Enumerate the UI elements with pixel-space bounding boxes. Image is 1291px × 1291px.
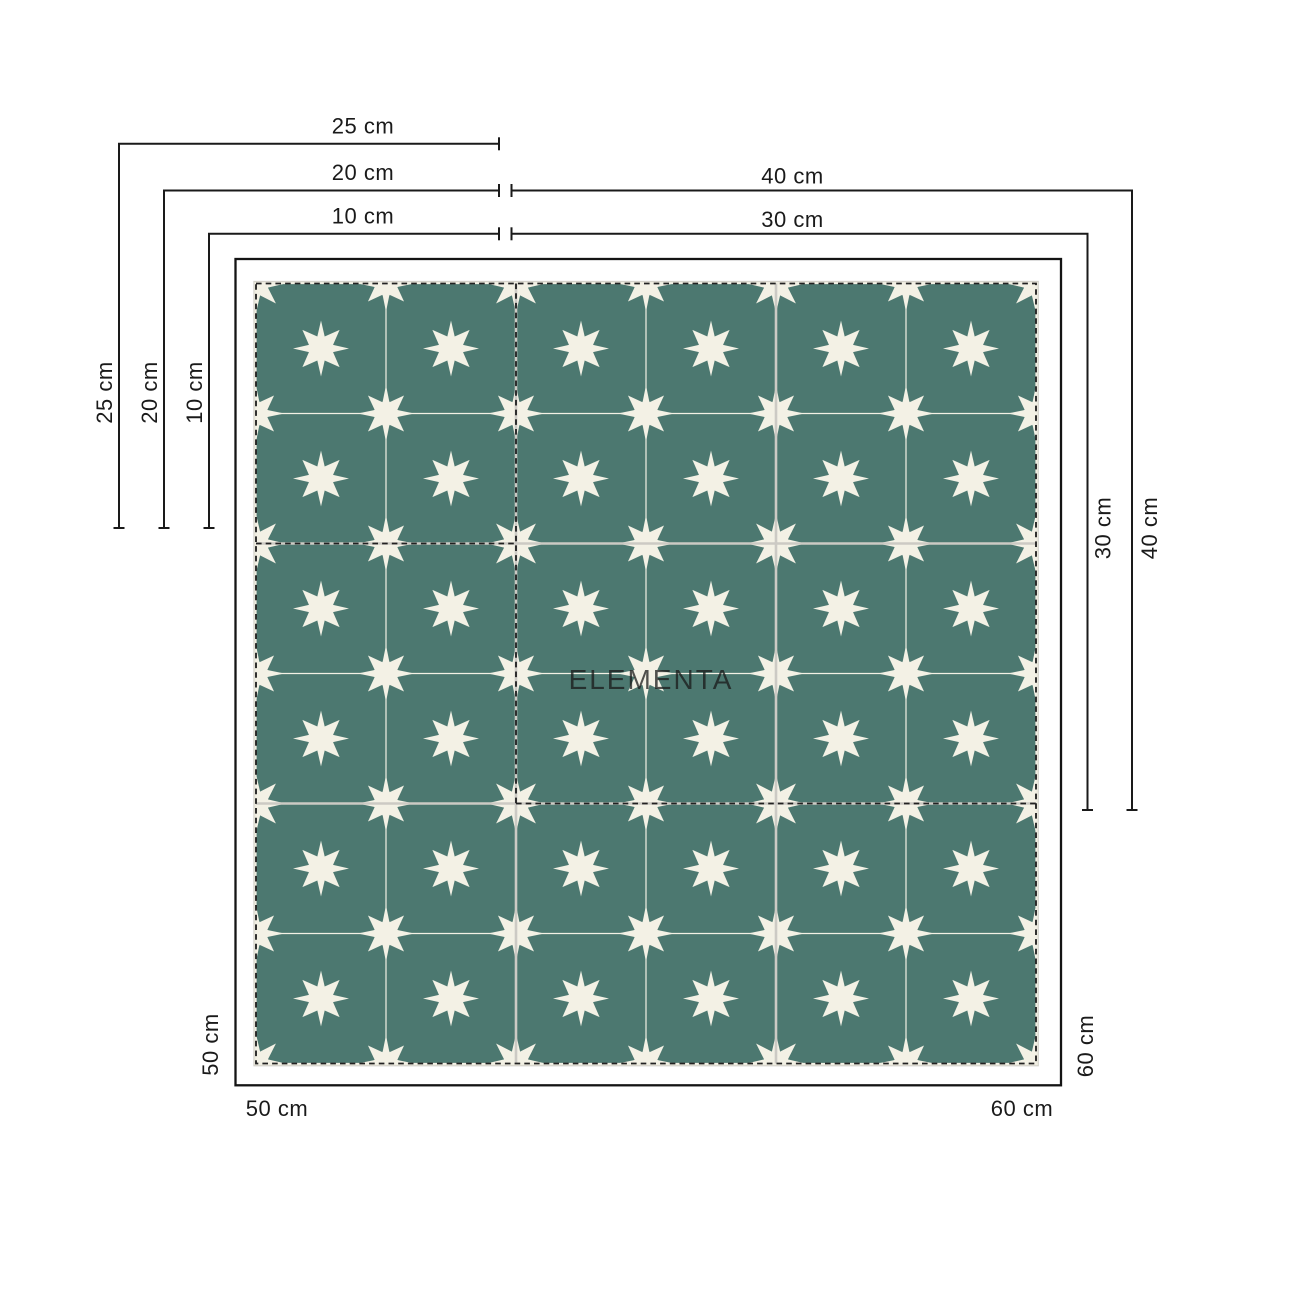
svg-text:50 cm: 50 cm bbox=[198, 1013, 223, 1075]
svg-text:20 cm: 20 cm bbox=[137, 361, 162, 423]
svg-text:30 cm: 30 cm bbox=[1091, 497, 1116, 559]
svg-text:50 cm: 50 cm bbox=[246, 1096, 308, 1121]
svg-text:40 cm: 40 cm bbox=[1137, 497, 1162, 559]
svg-text:10 cm: 10 cm bbox=[182, 361, 207, 423]
svg-text:60 cm: 60 cm bbox=[1073, 1015, 1098, 1077]
svg-text:40 cm: 40 cm bbox=[761, 164, 823, 189]
svg-text:25 cm: 25 cm bbox=[92, 361, 117, 423]
svg-text:60 cm: 60 cm bbox=[991, 1096, 1053, 1121]
svg-text:20 cm: 20 cm bbox=[332, 160, 394, 185]
svg-text:25 cm: 25 cm bbox=[332, 113, 394, 138]
svg-text:10 cm: 10 cm bbox=[332, 203, 394, 228]
svg-text:ELEMENTA: ELEMENTA bbox=[569, 664, 734, 695]
svg-text:30 cm: 30 cm bbox=[761, 207, 823, 232]
